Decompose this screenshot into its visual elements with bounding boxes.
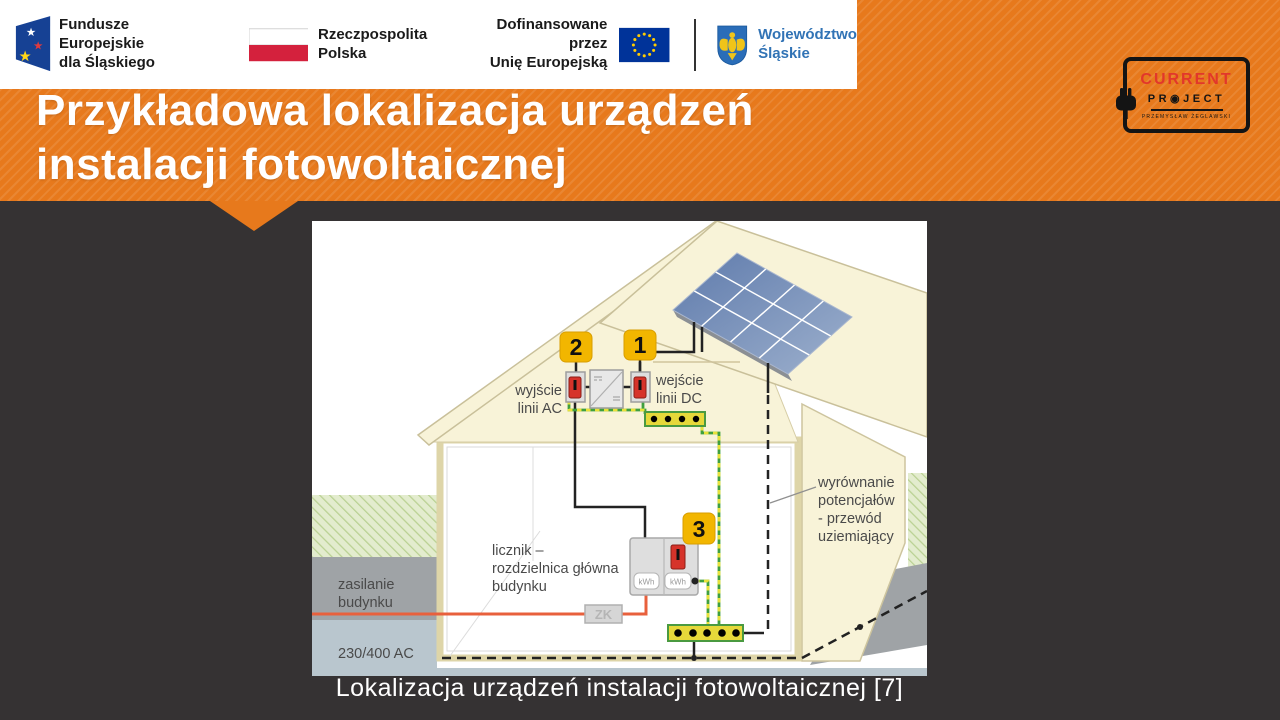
pv-installation-diagram: kWh kWh ZK 2 1 3 wyjście linii AC wejści… (312, 221, 927, 676)
image-caption: Lokalizacja urządzeń instalacji fotowolt… (292, 674, 947, 703)
grounding-label-line1: wyrównanie (817, 475, 895, 491)
supply-label-line2: budynku (338, 595, 393, 611)
attic-earth-busbar (645, 412, 705, 426)
meter-label-line3: budynku (492, 579, 547, 595)
eu-funds-flag-icon: ★ ★ ★ (15, 13, 51, 77)
poland-flag-icon (249, 27, 308, 63)
badge-1: 1 (624, 330, 656, 360)
silesia-line2: Śląskie (758, 45, 857, 64)
banner-notch (210, 201, 298, 231)
eu-funding-line1: Dofinansowane przez (469, 16, 607, 54)
cp-logo-word: PR◉JECT (1148, 92, 1226, 105)
zk-label: ZK (595, 607, 613, 622)
logo-divider (694, 19, 696, 71)
grounding-label-line3: - przewód (818, 511, 882, 527)
logo-bar: ★ ★ ★ Fundusze Europejskie dla Śląskiego… (0, 0, 857, 89)
current-project-logo: CURRENT PR◉JECT PRZEMYSŁAW ŻEGLAWSKI (1123, 57, 1250, 133)
ac-output-label-line1: wyjście (514, 383, 562, 399)
pv-diagram-svg: kWh kWh ZK 2 1 3 wyjście linii AC wejści… (312, 221, 927, 676)
eu-funds-label: Fundusze Europejskie dla Śląskiego (59, 16, 202, 72)
eu-funds-line2: dla Śląskiego (59, 54, 202, 73)
slide: ★ ★ ★ Fundusze Europejskie dla Śląskiego… (0, 0, 1280, 720)
badge-3-number: 3 (693, 516, 706, 542)
meter-main-switchboard: kWh kWh (630, 538, 699, 595)
svg-text:★: ★ (26, 25, 37, 38)
earth-junction-dot (857, 624, 863, 630)
poland-label: Rzeczpospolita Polska (318, 26, 427, 64)
plug-icon (1113, 88, 1139, 122)
supply-label-line1: zasilanie (338, 577, 394, 593)
badge-1-number: 1 (634, 332, 647, 358)
dc-disconnect-switch (631, 372, 650, 402)
inverter (590, 370, 623, 408)
badge-2: 2 (560, 332, 592, 362)
silesia-line1: Województwo (758, 26, 857, 45)
voltage-label: 230/400 AC (338, 646, 414, 662)
badge-3: 3 (683, 513, 715, 544)
cp-logo-subtitle: PRZEMYSŁAW ŻEGLAWSKI (1142, 114, 1231, 120)
silesia-crest-icon (716, 22, 748, 68)
ac-disconnect-switch (566, 372, 585, 402)
ground-junction-dot (691, 655, 697, 661)
eu-funding-label: Dofinansowane przez Unię Europejską (469, 16, 607, 72)
badge-2-number: 2 (570, 334, 583, 360)
poland-line2: Polska (318, 45, 427, 64)
meter-label-line2: rozdzielnica główna (492, 561, 619, 577)
main-earth-busbar (668, 625, 743, 641)
slide-title-line1: Przykładowa lokalizacja urządzeń (36, 84, 754, 138)
grounding-label-line2: potencjałów (818, 493, 895, 509)
cp-logo-rule (1151, 109, 1223, 111)
kwh-label-left: kWh (639, 578, 655, 587)
kwh-label-right: kWh (670, 578, 686, 587)
silesia-label: Województwo Śląskie (758, 26, 857, 64)
poland-line1: Rzeczpospolita (318, 26, 427, 45)
slide-title-line2: instalacji fotowoltaicznej (36, 138, 754, 192)
eu-funds-line1: Fundusze Europejskie (59, 16, 202, 54)
dc-input-label-line1: wejście (655, 373, 704, 389)
meter-label-line1: licznik – (492, 543, 545, 559)
grounding-label-line4: uziemiający (818, 529, 894, 545)
slide-title: Przykładowa lokalizacja urządzeń instala… (36, 84, 754, 191)
dc-input-label-line2: linii DC (656, 391, 702, 407)
svg-text:★: ★ (33, 39, 44, 52)
svg-text:★: ★ (19, 49, 32, 65)
ac-output-label-line2: linii AC (518, 401, 562, 417)
eu-funding-line2: Unię Europejską (469, 54, 607, 73)
cp-logo-name: CURRENT (1140, 71, 1232, 89)
zk-connector-box: ZK (585, 605, 622, 623)
eu-flag-icon (619, 26, 669, 64)
